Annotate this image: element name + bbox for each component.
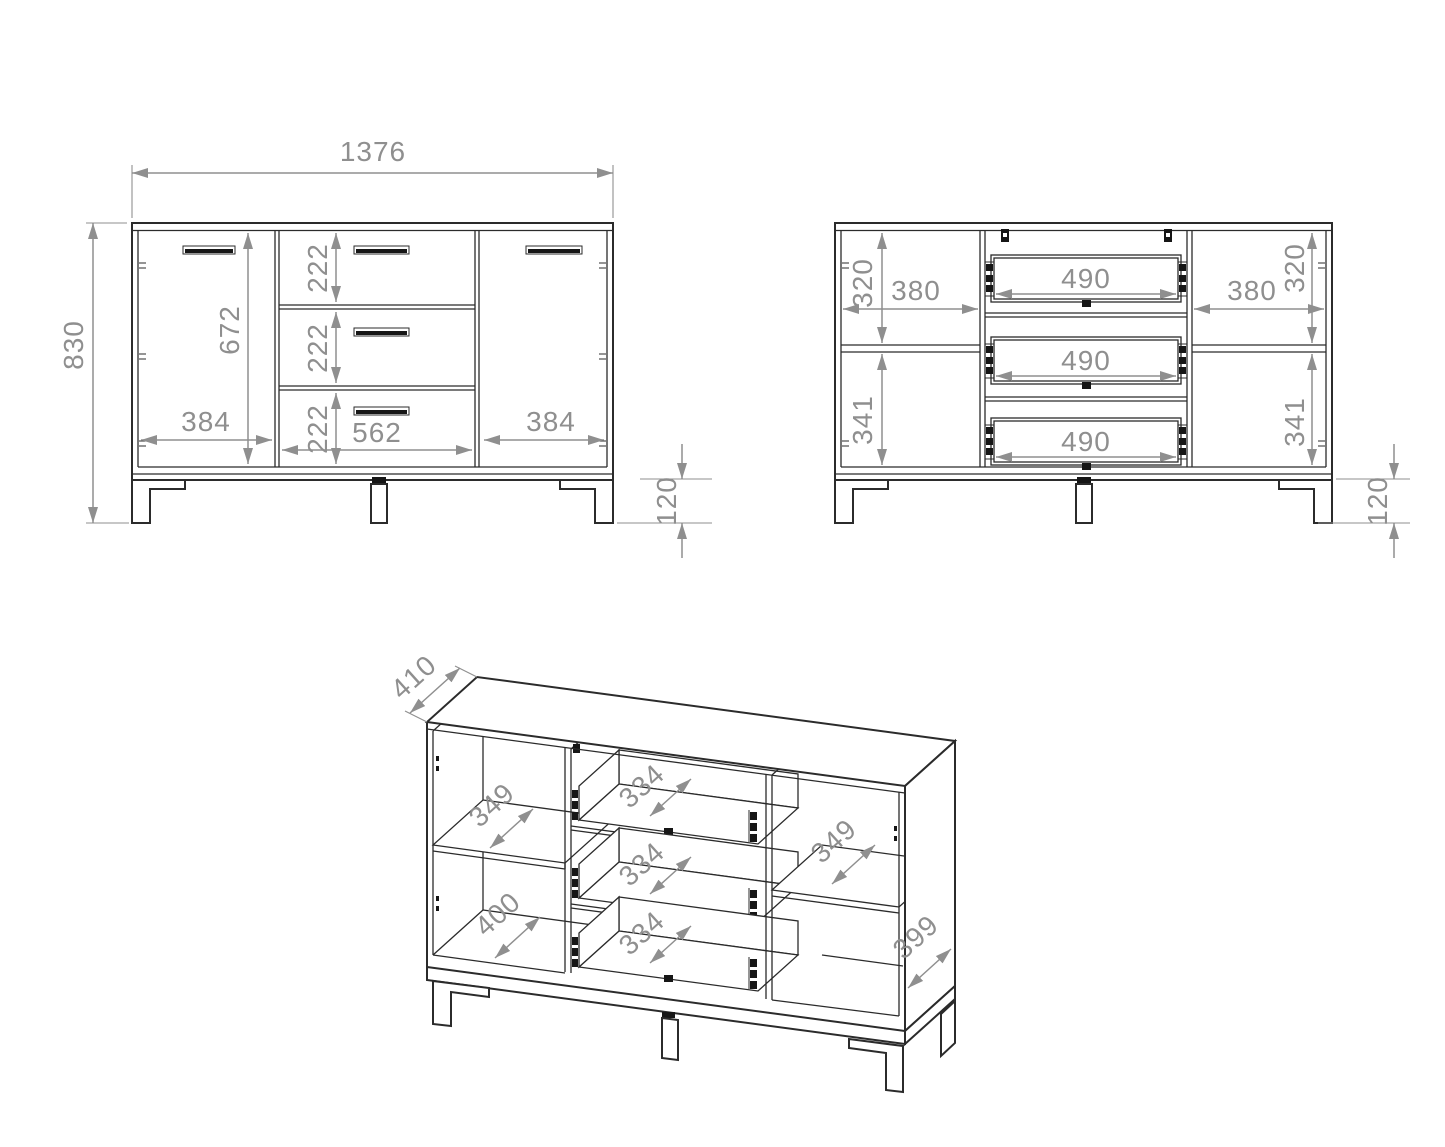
- dim-left-door-width: 384: [181, 406, 231, 437]
- dim-left-top-height: 320: [847, 258, 878, 308]
- dim-overall-height: 830: [58, 320, 89, 370]
- dim-drawer-height-2: 222: [302, 323, 333, 373]
- dim-drawer-inner-width-2: 490: [1061, 345, 1111, 376]
- dim-overall-width: 1376: [340, 136, 406, 167]
- technical-drawing-sheet: 1376 830 672 222 222 222 384 562 384 120: [0, 0, 1445, 1147]
- dim-drawer-inner-width-1: 490: [1061, 263, 1111, 294]
- dim-leg-height-front: 120: [651, 476, 682, 526]
- dim-drawer-inner-width-3: 490: [1061, 426, 1111, 457]
- dim-left-bottom-height: 341: [847, 395, 878, 445]
- dim-drawer-width: 562: [352, 417, 402, 448]
- iso-right-side-panel: [905, 741, 955, 1031]
- furniture-dimension-drawing: 1376 830 672 222 222 222 384 562 384 120: [0, 0, 1445, 1147]
- dim-left-width: 380: [891, 275, 941, 306]
- dim-right-top-height: 320: [1279, 243, 1310, 293]
- dim-right-bottom-height: 341: [1279, 397, 1310, 447]
- dim-right-door-width: 384: [526, 406, 576, 437]
- dim-leg-height-internal: 120: [1362, 476, 1393, 526]
- dim-drawer-height-1: 222: [302, 243, 333, 293]
- dim-door-height: 672: [214, 305, 245, 355]
- dim-right-width: 380: [1227, 275, 1277, 306]
- dim-drawer-height-3: 222: [302, 404, 333, 454]
